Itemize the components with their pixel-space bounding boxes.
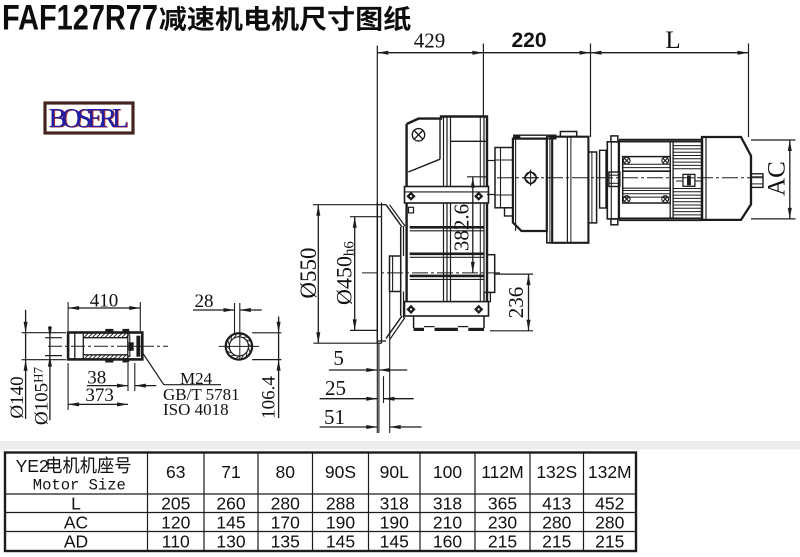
svg-text:Motor Size: Motor Size [33,476,126,494]
svg-text:280: 280 [271,494,300,514]
svg-text:28: 28 [195,291,214,312]
svg-text:100: 100 [433,462,462,482]
svg-text:190: 190 [326,512,355,532]
svg-text:Ø105H7: Ø105H7 [31,366,53,425]
svg-text:190: 190 [380,512,409,532]
svg-text:145: 145 [380,531,409,551]
svg-text:288: 288 [326,494,355,514]
svg-text:Ø450h6: Ø450h6 [332,241,358,305]
svg-text:373: 373 [85,385,114,406]
svg-text:25: 25 [325,376,346,400]
svg-text:106.4: 106.4 [259,376,280,419]
svg-text:145: 145 [326,531,355,551]
svg-text:L: L [71,494,81,514]
svg-text:452: 452 [595,494,624,514]
svg-text:170: 170 [271,512,300,532]
svg-text:230: 230 [488,512,517,532]
svg-text:90L: 90L [380,462,409,482]
svg-text:AC: AC [64,512,88,532]
svg-text:112M: 112M [481,462,523,482]
svg-text:ISO 4018: ISO 4018 [163,400,229,419]
svg-text:80: 80 [276,462,296,482]
svg-text:132M: 132M [588,462,632,482]
svg-text:AD: AD [64,531,88,551]
svg-text:318: 318 [380,494,409,514]
svg-text:382.6: 382.6 [450,204,474,251]
svg-text:71: 71 [221,462,240,482]
svg-text:260: 260 [216,494,245,514]
svg-text:BOSERL: BOSERL [49,103,129,133]
svg-text:110: 110 [162,531,190,551]
svg-text:410: 410 [90,290,119,311]
svg-text:215: 215 [542,531,571,551]
svg-text:135: 135 [271,531,300,551]
svg-text:AC: AC [764,161,791,196]
svg-text:51: 51 [324,405,345,429]
svg-text:90S: 90S [325,462,356,482]
svg-text:280: 280 [542,512,571,532]
svg-text:63: 63 [166,462,185,482]
svg-text:318: 318 [433,494,462,514]
svg-text:215: 215 [595,531,624,551]
svg-text:429: 429 [414,28,446,52]
svg-text:L: L [665,27,680,54]
svg-text:220: 220 [511,29,546,52]
svg-text:132S: 132S [536,462,577,482]
svg-text:145: 145 [216,512,245,532]
svg-text:Ø140: Ø140 [7,376,28,418]
svg-text:Ø550: Ø550 [296,247,321,298]
svg-text:5: 5 [333,346,344,370]
svg-text:215: 215 [488,531,517,551]
svg-text:280: 280 [595,512,624,532]
svg-text:205: 205 [161,494,190,514]
svg-text:FAF127R77: FAF127R77 [2,0,158,38]
svg-text:130: 130 [216,531,245,551]
svg-text:160: 160 [433,531,462,551]
svg-text:413: 413 [542,494,571,514]
svg-text:210: 210 [433,512,462,532]
svg-text:120: 120 [161,512,190,532]
svg-text:236: 236 [504,287,528,319]
svg-text:365: 365 [488,494,517,514]
svg-text:YE2: YE2 [16,456,49,476]
